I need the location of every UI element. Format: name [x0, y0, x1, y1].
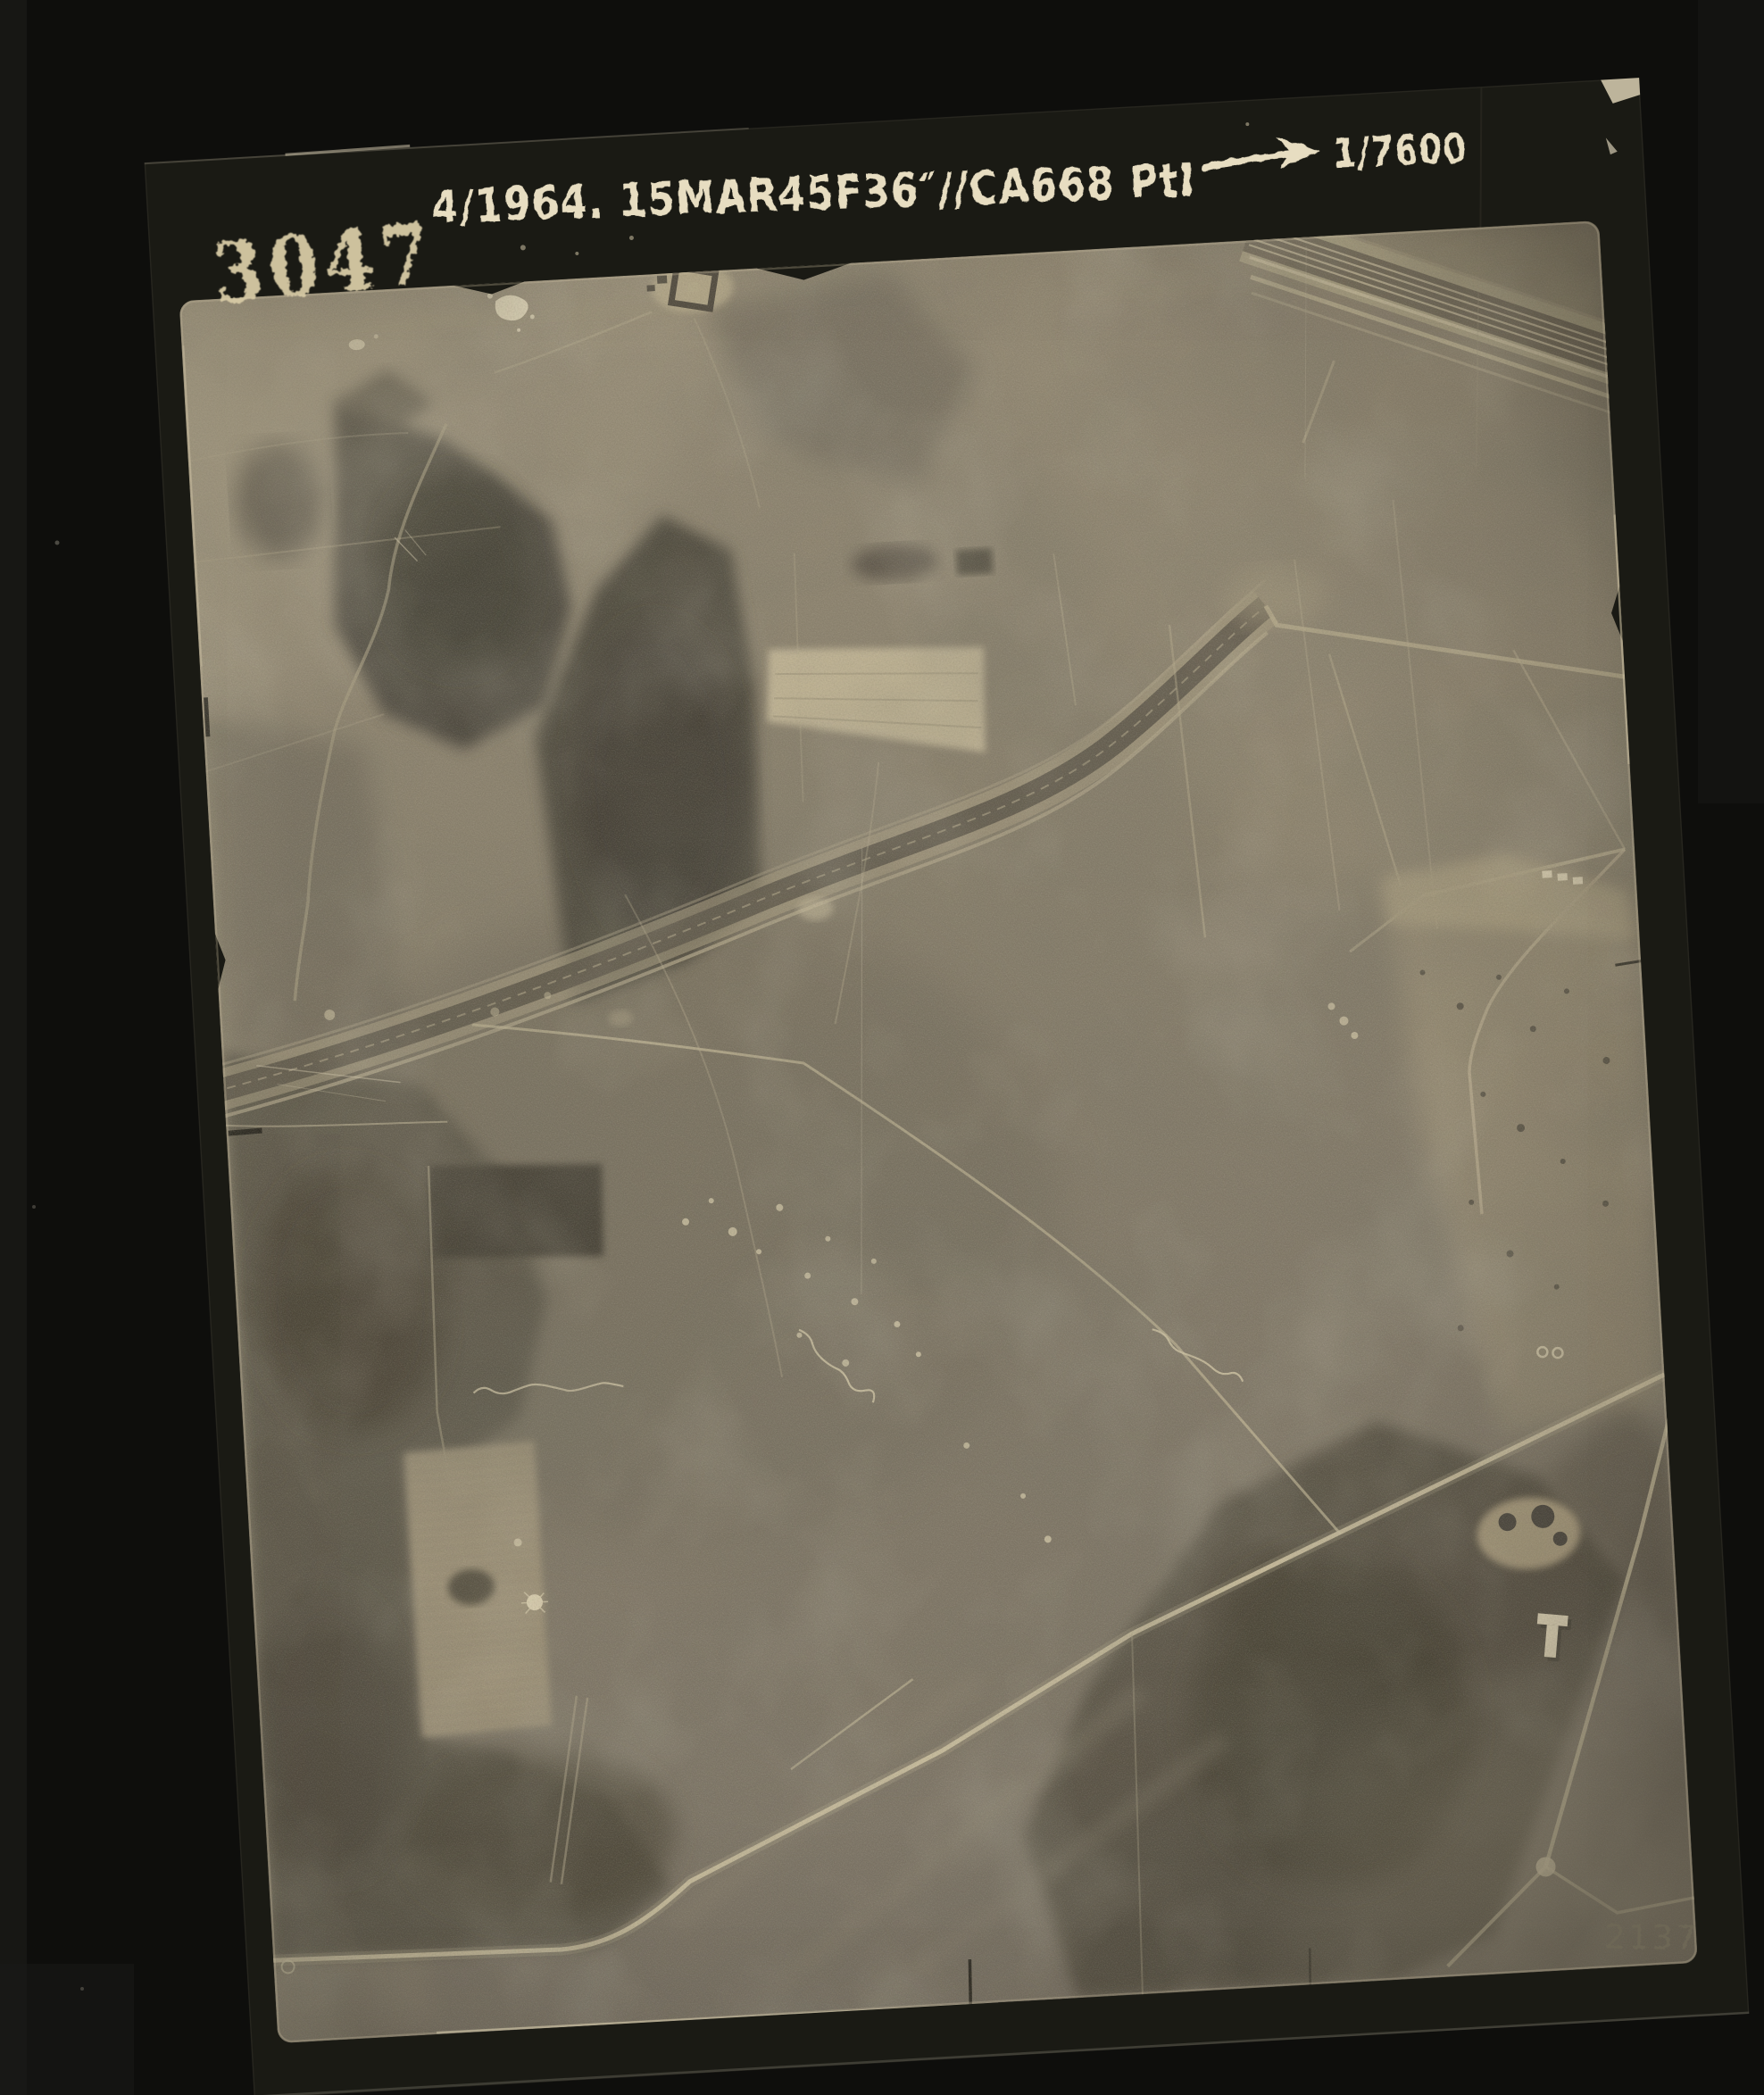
- scanned-aerial-photo-page: 4/1964. 15MAR45F36″//CA668 PtI 1/7600 30…: [0, 0, 1764, 2095]
- dust-speck: [80, 1987, 84, 1991]
- photo-print: 4/1964. 15MAR45F36″//CA668 PtI 1/7600 30…: [0, 61, 1764, 2095]
- dust-speck: [32, 1205, 36, 1209]
- aerial-photo: [2, 87, 1764, 2095]
- scale-annotation: 1/7600: [1333, 124, 1469, 177]
- dust-speck: [55, 541, 60, 545]
- pencil-frame-number: 2137: [1604, 1918, 1700, 1958]
